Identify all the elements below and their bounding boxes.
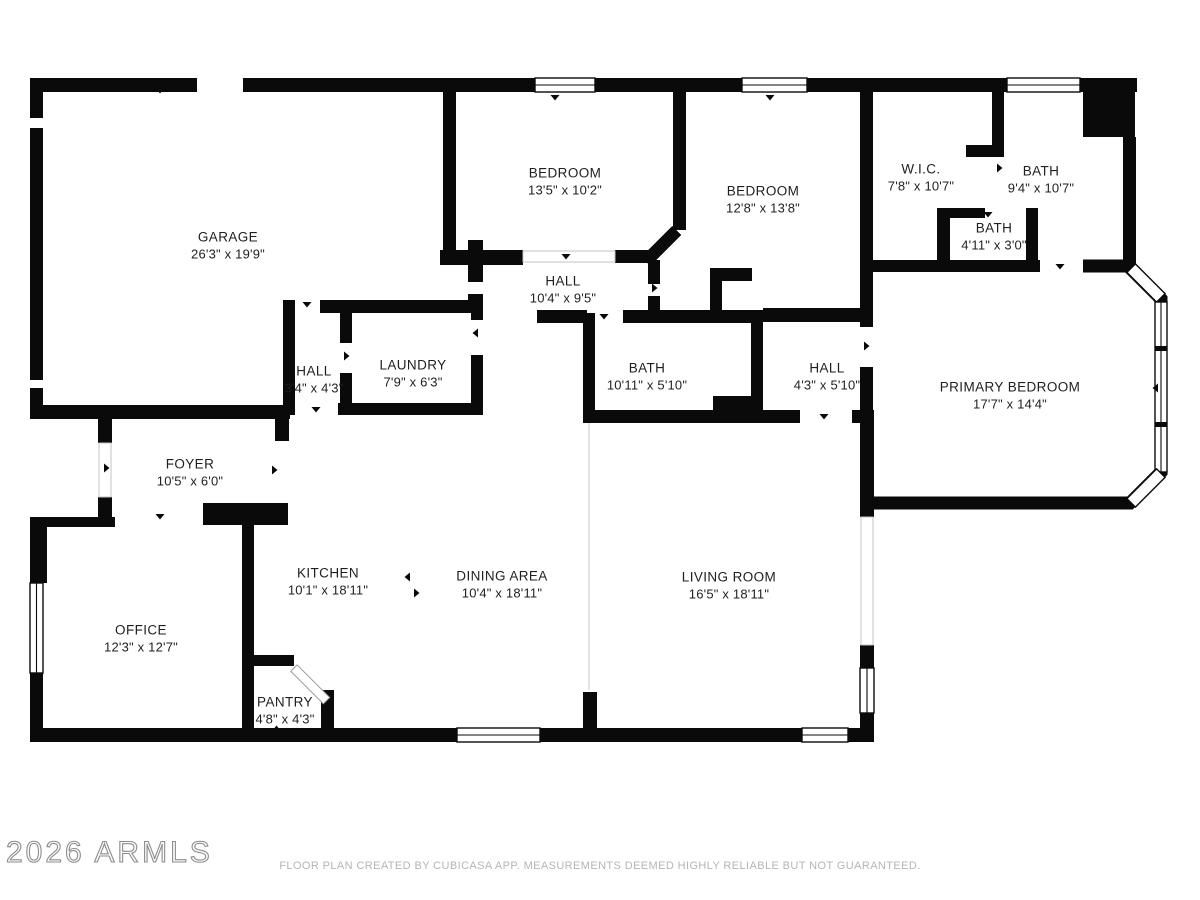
room-dims: 9'4" x 10'7" [1008, 180, 1074, 197]
room-dims: 10'4" x 18'11" [456, 585, 547, 602]
room-name: KITCHEN [288, 566, 368, 582]
room-dims: 10'11" x 5'10" [607, 377, 687, 394]
room-dims: 12'3" x 12'7" [104, 639, 178, 656]
room-dims: 16'5" x 18'11" [682, 586, 776, 603]
room-name: OFFICE [104, 623, 178, 639]
room-name: BATH [607, 361, 687, 377]
room-name: HALL [530, 274, 596, 290]
window-glyph [30, 583, 43, 673]
bay-window-bottom [1127, 469, 1165, 507]
room-name: BEDROOM [528, 166, 602, 182]
room-label-hall-mid: HALL 4'3" x 5'10" [794, 361, 860, 394]
room-name: FOYER [157, 457, 223, 473]
room-label-pantry: PANTRY 4'8" x 4'3" [255, 695, 314, 728]
floor-plan-walls [0, 0, 1200, 900]
room-label-bath-mid: BATH 10'11" x 5'10" [607, 361, 687, 394]
room-label-bath-small: BATH 4'11" x 3'0" [961, 221, 1027, 254]
room-label-wic: W.I.C. 7'8" x 10'7" [888, 162, 954, 195]
room-dims: 17'7" x 14'4" [940, 396, 1081, 413]
room-label-garage: GARAGE 26'3" x 19'9" [191, 230, 265, 263]
room-dims: 10'5" x 6'0" [157, 473, 223, 490]
room-label-primary-bedroom: PRIMARY BEDROOM 17'7" x 14'4" [940, 380, 1081, 413]
window-glyph [802, 728, 848, 742]
room-label-hall-upper: HALL 10'4" x 9'5" [530, 274, 596, 307]
room-dims: 26'3" x 19'9" [191, 246, 265, 263]
window-glyph [742, 78, 807, 92]
room-dims: 3'4" x 4'3" [284, 380, 343, 397]
window-glyph [860, 668, 874, 713]
room-name: LAUNDRY [379, 358, 446, 374]
room-dims: 13'5" x 10'2" [528, 182, 602, 199]
room-name: LIVING ROOM [682, 570, 776, 586]
room-label-office: OFFICE 12'3" x 12'7" [104, 623, 178, 656]
room-dims: 7'9" x 6'3" [379, 374, 446, 391]
room-name: GARAGE [191, 230, 265, 246]
sliding-door [861, 517, 873, 645]
room-dims: 7'8" x 10'7" [888, 178, 954, 195]
room-label-foyer: FOYER 10'5" x 6'0" [157, 457, 223, 490]
window-glyph [457, 728, 540, 742]
room-dims: 10'1" x 18'11" [288, 582, 368, 599]
room-name: BEDROOM [726, 184, 800, 200]
room-name: HALL [794, 361, 860, 377]
footer-disclaimer: FLOOR PLAN CREATED BY CUBICASA APP. MEAS… [0, 860, 1200, 872]
room-label-laundry: LAUNDRY 7'9" x 6'3" [379, 358, 446, 391]
bay-window-top [1127, 264, 1165, 302]
room-name: PRIMARY BEDROOM [940, 380, 1081, 396]
room-dims: 12'8" x 13'8" [726, 200, 800, 217]
room-dims: 4'11" x 3'0" [961, 237, 1027, 254]
room-label-hall-small: HALL 3'4" x 4'3" [284, 364, 343, 397]
room-label-living: LIVING ROOM 16'5" x 18'11" [682, 570, 776, 603]
room-name: PANTRY [255, 695, 314, 711]
room-label-bath-upper: BATH 9'4" x 10'7" [1008, 164, 1074, 197]
floor-plan: GARAGE 26'3" x 19'9" BEDROOM 13'5" x 10'… [0, 0, 1200, 900]
bedroom-opening [523, 251, 615, 262]
room-label-dining: DINING AREA 10'4" x 18'11" [456, 569, 547, 602]
room-dims: 10'4" x 9'5" [530, 290, 596, 307]
room-label-bedroom1: BEDROOM 13'5" x 10'2" [528, 166, 602, 199]
room-label-bedroom2: BEDROOM 12'8" x 13'8" [726, 184, 800, 217]
room-name: BATH [961, 221, 1027, 237]
room-name: W.I.C. [888, 162, 954, 178]
room-dims: 4'8" x 4'3" [255, 711, 314, 728]
room-label-kitchen: KITCHEN 10'1" x 18'11" [288, 566, 368, 599]
window-glyph [535, 78, 595, 92]
window-glyph [1007, 78, 1080, 92]
room-dims: 4'3" x 5'10" [794, 377, 860, 394]
room-name: BATH [1008, 164, 1074, 180]
room-name: DINING AREA [456, 569, 547, 585]
room-name: HALL [284, 364, 343, 380]
